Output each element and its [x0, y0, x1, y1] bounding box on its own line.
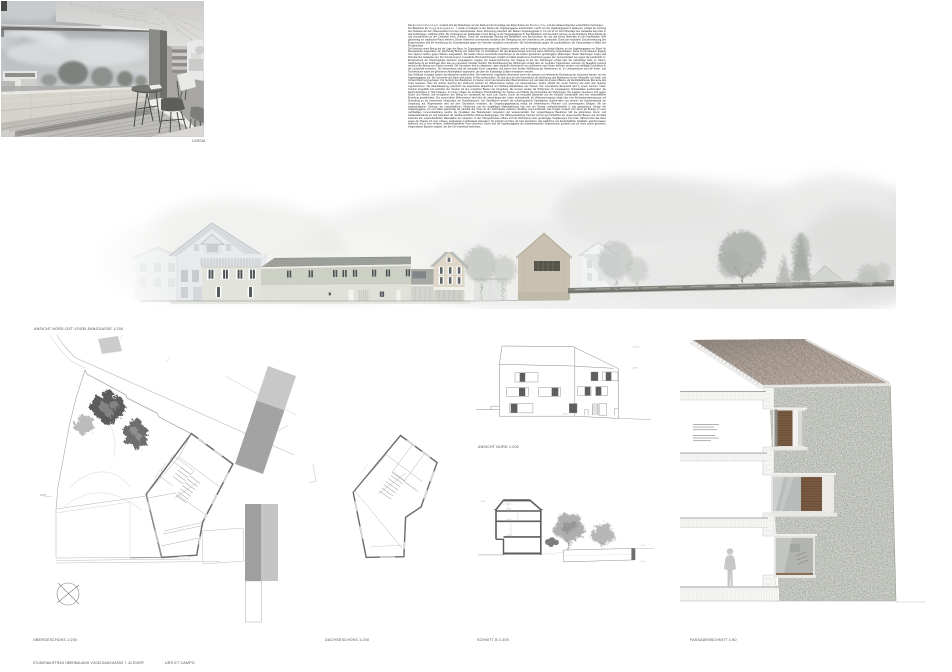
- svg-text:+8.45: +8.45: [632, 368, 638, 370]
- svg-text:+6.25: +6.25: [506, 509, 512, 511]
- svg-text:+9.90: +9.90: [480, 501, 486, 503]
- svg-text:-0.45: -0.45: [640, 561, 645, 563]
- svg-text:+0.00: +0.00: [506, 534, 512, 536]
- svg-text:+1.20: +1.20: [640, 545, 646, 547]
- svg-text:+3.15: +3.15: [506, 519, 512, 521]
- svg-text:+12.10: +12.10: [632, 347, 640, 349]
- svg-text:+0.00: +0.00: [562, 414, 568, 416]
